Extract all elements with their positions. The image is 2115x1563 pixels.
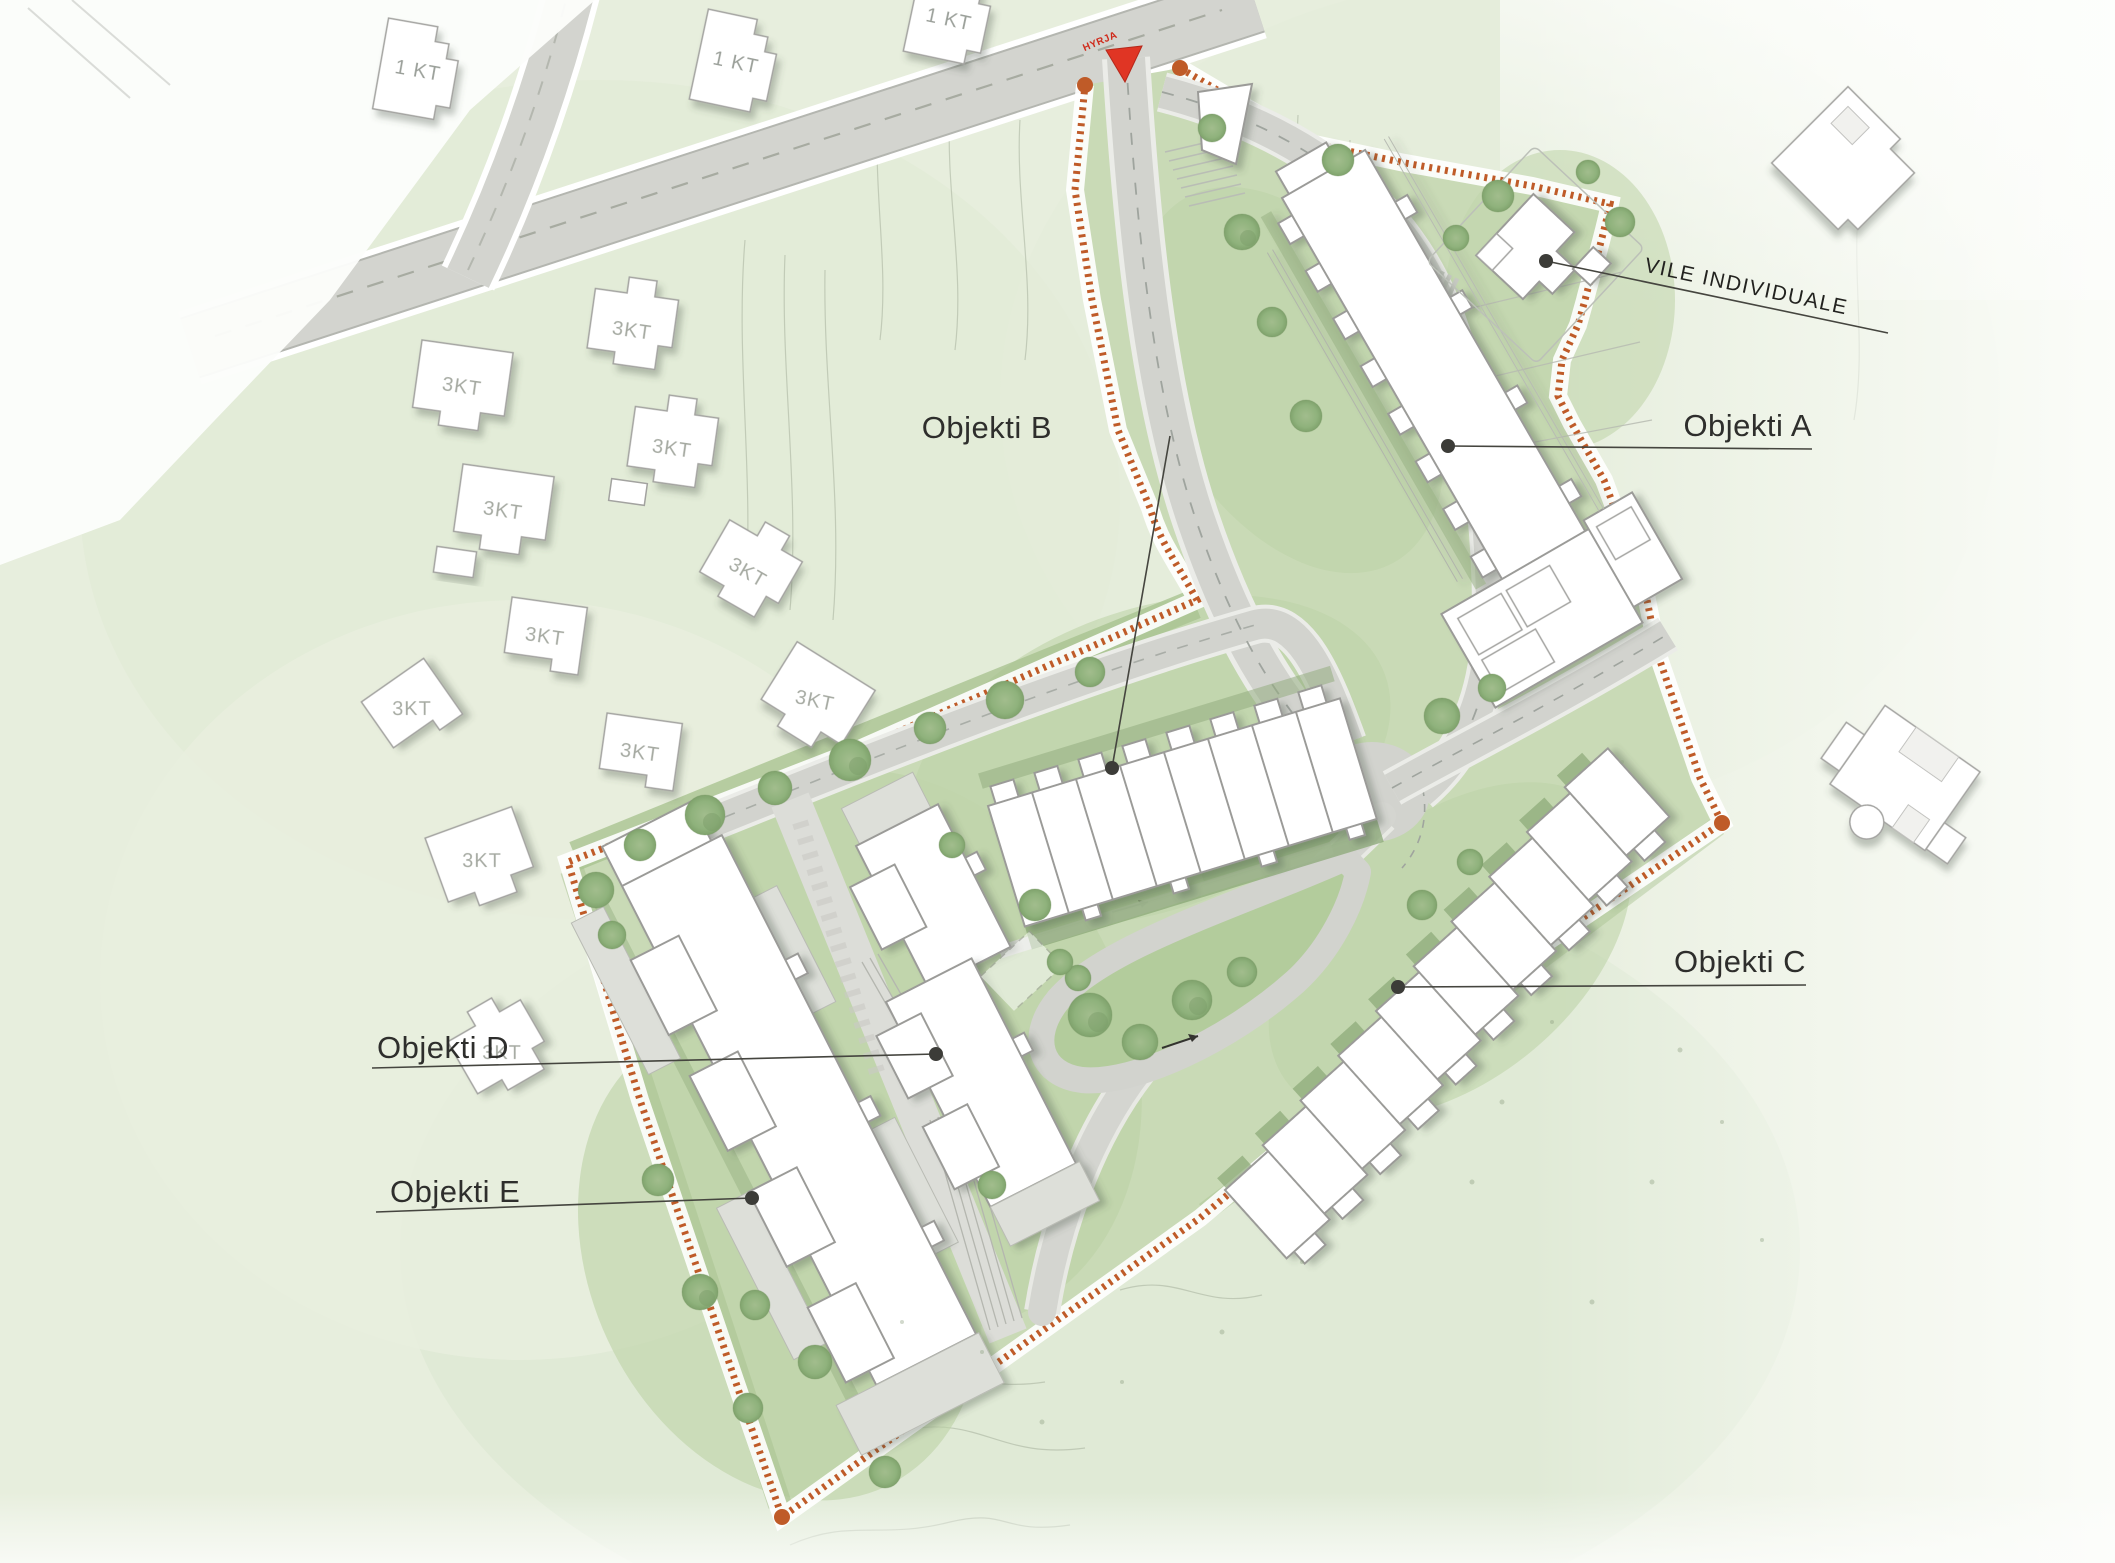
tree (914, 712, 946, 744)
tree (578, 872, 614, 908)
tree (1227, 957, 1257, 987)
tree (1068, 993, 1112, 1037)
tree (978, 1171, 1006, 1199)
shed (433, 546, 476, 577)
objekti-c-label: Objekti C (1674, 944, 1806, 979)
tree (869, 1456, 901, 1488)
tree (798, 1345, 832, 1379)
objekti-a-label: Objekti A (1683, 408, 1812, 443)
boundary-node (774, 1509, 790, 1525)
tree (685, 795, 725, 835)
house-label: 3KT (392, 698, 432, 720)
tree (1605, 207, 1635, 237)
objekti-d-leader-dot (929, 1047, 943, 1061)
vile-leader-dot (1539, 254, 1553, 268)
tree (1424, 698, 1460, 734)
tree (1224, 214, 1260, 250)
shed (609, 479, 648, 506)
site-plan-image: 1 KT 1 KT 1 KT 3KT 3KT 3KT 3KT 3KT 3KT 3… (0, 0, 2115, 1563)
house-label: 3KT (462, 850, 502, 872)
tree (1407, 890, 1437, 920)
tree (758, 771, 792, 805)
tree (733, 1393, 763, 1423)
tree (1482, 180, 1514, 212)
tree (1322, 144, 1354, 176)
tree (1198, 114, 1226, 142)
tree (1457, 849, 1483, 875)
tree (598, 921, 626, 949)
tree (740, 1290, 770, 1320)
tree (1478, 674, 1506, 702)
boundary-node (1172, 60, 1188, 76)
objekti-a-leader-dot (1441, 439, 1455, 453)
tree (1443, 225, 1469, 251)
objekti-d-label: Objekti D (377, 1030, 509, 1065)
boundary-node (1077, 77, 1093, 93)
objekti-b-leader-dot (1105, 761, 1119, 775)
tree (682, 1274, 718, 1310)
tree (1075, 657, 1105, 687)
objekti-e-label: Objekti E (390, 1174, 520, 1209)
tree (642, 1164, 674, 1196)
site-plan-canvas: 1 KT 1 KT 1 KT 3KT 3KT 3KT 3KT 3KT 3KT 3… (0, 0, 2115, 1563)
tree (1290, 400, 1322, 432)
tree (1019, 889, 1051, 921)
objekti-e-leader-dot (745, 1191, 759, 1205)
tree (624, 829, 656, 861)
boundary-node (1714, 815, 1730, 831)
objekti-c-leader-dot (1391, 980, 1405, 994)
tree (1257, 307, 1287, 337)
tree (939, 832, 965, 858)
tree (1122, 1024, 1158, 1060)
tree (986, 681, 1024, 719)
tree (1047, 949, 1073, 975)
tree (1576, 160, 1600, 184)
objekti-b-label: Objekti B (922, 410, 1052, 445)
